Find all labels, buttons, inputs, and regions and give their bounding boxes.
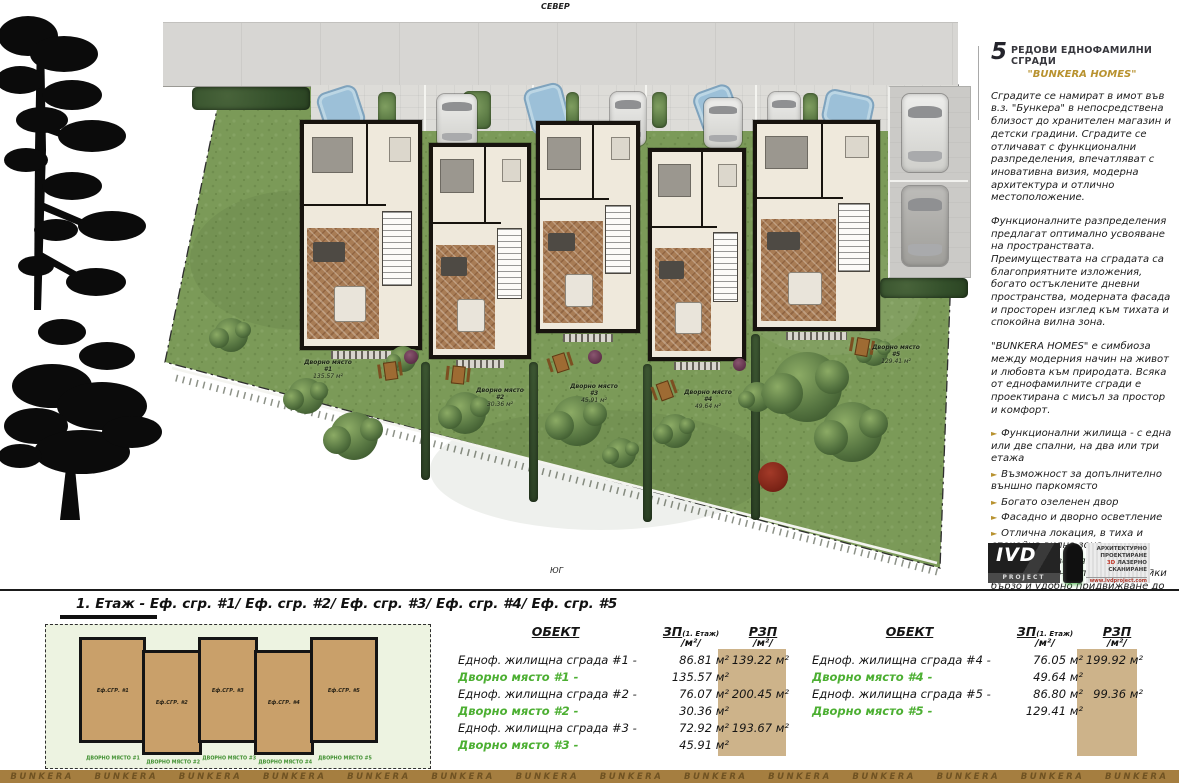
interior-wall <box>433 222 501 224</box>
bedroom-furniture <box>440 159 474 192</box>
interior-wall <box>757 197 843 199</box>
object-label: Дворно място #2 - <box>458 704 653 718</box>
rzp-value: 139.22 м² <box>729 653 789 667</box>
feature-item: ►Функционални жилища - с една или две сп… <box>991 428 1173 466</box>
feature-item: ►Фасадно и дворно осветление <box>991 512 1173 525</box>
title-underline <box>60 615 157 619</box>
title-text: РЕДОВИ ЕДНОФАМИЛНИ СГРАДИ <box>1011 45 1173 68</box>
bathroom <box>845 136 868 158</box>
description-paragraph: Функционалните разпределения предлагат о… <box>991 216 1173 330</box>
house-plan-1 <box>300 120 422 350</box>
col-object: ОБЕКТ <box>812 624 1007 639</box>
zp-sublabel: (1. Етаж) <box>682 630 719 638</box>
yard-name: Дворно място #1 <box>300 360 356 374</box>
staircase <box>838 203 870 272</box>
logo-name: IVD <box>996 544 1037 566</box>
bathroom <box>611 137 630 159</box>
red-bush <box>758 462 788 492</box>
rzp-label: РЗП <box>749 624 778 639</box>
picnic-table <box>445 365 471 383</box>
object-label: Едноф. жилищна сграда #4 - <box>812 653 1007 667</box>
site-plan: Дворно място #1 135.57 м² Дворно място #… <box>0 0 990 590</box>
table-row: Едноф. жилищна сграда #3 -72.92 м²193.67… <box>458 720 794 737</box>
yard-label-5: Дворно място #5 129.41 м² <box>868 345 924 366</box>
yard-hedge <box>751 334 760 520</box>
hedge-parking <box>880 278 968 298</box>
yard-name: Дворно място #3 <box>566 384 622 398</box>
watermark-text: BUNKERA <box>684 772 748 782</box>
zp-label: ЗП <box>1017 624 1036 639</box>
object-label: Дворно място #1 - <box>458 670 653 684</box>
panel-title: 5 РЕДОВИ ЕДНОФАМИЛНИ СГРАДИ <box>991 42 1173 68</box>
object-label: Дворно място #4 - <box>812 670 1007 684</box>
rzp-value: 199.92 м² <box>1083 653 1143 667</box>
zp-label: ЗП <box>663 624 682 639</box>
feature-text: Възможност за допълнително външно парком… <box>991 469 1162 493</box>
car <box>437 94 477 148</box>
interior-wall <box>701 152 703 226</box>
watermark-text: BUNKERA <box>179 772 243 782</box>
brand-subtitle: "BUNKERA HOMES" <box>991 69 1173 80</box>
rzp-unit: /м²/ <box>1088 639 1146 649</box>
table-row: Дворно място #2 -30.36 м² <box>458 703 794 720</box>
picnic-table <box>377 360 403 379</box>
watermark-text: BUNKERA <box>10 772 74 782</box>
watermark-text: BUNKERA <box>600 772 664 782</box>
tree <box>658 414 692 448</box>
rzp-label: РЗП <box>1103 624 1132 639</box>
car <box>902 94 948 172</box>
tree <box>606 438 636 468</box>
bedroom-furniture <box>312 137 353 172</box>
interior-wall <box>652 226 717 228</box>
bullet-arrow-icon: ► <box>991 429 997 438</box>
feature-text: Функционални жилища - с една или две спа… <box>991 428 1171 464</box>
planter <box>652 92 667 128</box>
title-number: 5 <box>991 42 1007 63</box>
floor-title: 1. Етаж - Еф. сгр. #1/ Еф. сгр. #2/ Еф. … <box>76 596 617 612</box>
rzp-value: 99.36 м² <box>1083 687 1143 701</box>
mini-building-1: Еф.СГР. #1 <box>79 637 146 743</box>
table-row: Дворно място #3 -45.91 м² <box>458 736 794 753</box>
yard-hedge <box>421 362 430 480</box>
yard-label-3: Дворно място #3 45.91 м² <box>566 384 622 405</box>
purple-bush <box>733 358 746 371</box>
feature-item: ►Възможност за допълнително външно парко… <box>991 469 1173 494</box>
yard-name: Дворно място #2 <box>472 388 528 402</box>
scanner-icon <box>1063 543 1083 583</box>
table-row: Едноф. жилищна сграда #5 -86.80 м²99.36 … <box>812 686 1144 703</box>
rzp-value: 193.67 м² <box>729 721 789 735</box>
sofa <box>313 242 345 262</box>
yard-label-2: Дворно място #2 30.36 м² <box>472 388 528 409</box>
interior-wall <box>821 124 823 197</box>
table-row: Едноф. жилищна сграда #1 -86.81 м²139.22… <box>458 652 794 669</box>
object-label: Едноф. жилищна сграда #2 - <box>458 687 653 701</box>
zp-value: 135.57 м² <box>653 670 729 684</box>
mini-yard-label-2: ДВОРНО МЯСТО #2 <box>146 760 197 766</box>
table-row: Дворно място #1 -135.57 м² <box>458 669 794 686</box>
logo-line: ПРОЕКТИРАНЕ <box>1086 553 1147 560</box>
watermark-text: BUNKERA <box>1021 772 1085 782</box>
table-header: ОБЕКТ ЗП(1. Етаж) /м²/ РЗП /м²/ <box>458 624 794 652</box>
bathroom <box>718 164 736 187</box>
logo-line: 3D ЛАЗЕРНО <box>1086 560 1147 567</box>
yard-area: 30.36 м² <box>487 401 513 408</box>
bathroom <box>502 159 521 182</box>
table-row: Едноф. жилищна сграда #4 -76.05 м²199.92… <box>812 652 1144 669</box>
mini-building-label: Еф.СГР. #4 <box>268 700 300 706</box>
watermark-text: BUNKERA <box>431 772 495 782</box>
sofa <box>767 232 800 250</box>
zp-value: 30.36 м² <box>653 704 729 718</box>
watermark-text: BUNKERA <box>937 772 1001 782</box>
description-paragraph: "BUNKERA HOMES" е симбиоза между модерни… <box>991 341 1173 417</box>
house-plan-2 <box>429 143 531 359</box>
yard-label-4: Дворно място #4 49.64 м² <box>680 390 736 411</box>
mini-building-label: Еф.СГР. #5 <box>328 687 360 693</box>
mini-building-5: Еф.СГР. #5 <box>310 637 378 743</box>
first-floor-section: 1. Етаж - Еф. сгр. #1/ Еф. сгр. #2/ Еф. … <box>0 589 1179 772</box>
interior-wall <box>592 125 594 198</box>
col-object: ОБЕКТ <box>458 624 653 639</box>
watermark-text: BUNKERA <box>263 772 327 782</box>
table-row: Дворно място #5 -129.41 м² <box>812 703 1144 720</box>
yard-area: 135.57 м² <box>313 373 343 380</box>
col-rzp: РЗП /м²/ <box>734 624 792 649</box>
street-north <box>163 22 958 87</box>
bullet-arrow-icon: ► <box>991 529 997 538</box>
mini-yard-label-5: ДВОРНО МЯСТО #5 <box>317 756 373 762</box>
mini-building-4: Еф.СГР. #4 <box>254 650 314 755</box>
col-zp: ЗП(1. Етаж) /м²/ <box>653 624 729 649</box>
mini-yard-label-1: ДВОРНО МЯСТО #1 <box>85 756 141 762</box>
brochure-page: Дворно място #1 135.57 м² Дворно място #… <box>0 0 1179 783</box>
staircase <box>605 205 631 274</box>
yard-area: 49.64 м² <box>695 403 721 410</box>
dining-table <box>334 286 367 321</box>
dining-table <box>565 274 593 307</box>
feature-text: Фасадно и дворно осветление <box>1001 512 1162 523</box>
object-label: Едноф. жилищна сграда #3 - <box>458 721 653 735</box>
zp-value: 45.91 м² <box>653 738 729 752</box>
staircase <box>713 232 738 302</box>
interior-wall <box>540 198 609 200</box>
area-table-right: ОБЕКТ ЗП(1. Етаж) /м²/ РЗП /м²/ Едноф. ж… <box>812 624 1144 720</box>
object-label: Дворно място #5 - <box>812 704 1007 718</box>
hedge-top-left <box>192 87 310 110</box>
bedroom-furniture <box>765 136 807 168</box>
table-row: Едноф. жилищна сграда #2 -76.07 м²200.45… <box>458 686 794 703</box>
tree <box>330 412 378 460</box>
purple-bush <box>588 350 602 364</box>
logo-services: АРХИТЕКТУРНО ПРОЕКТИРАНЕ 3D ЛАЗЕРНО СКАН… <box>1086 543 1150 583</box>
feature-text: Богато озеленен двор <box>1001 497 1118 508</box>
zp-value: 129.41 м² <box>1007 704 1083 718</box>
house-plan-3 <box>536 121 640 333</box>
interior-wall <box>304 204 386 206</box>
house-plan-4 <box>648 148 746 361</box>
mini-building-2: Еф.СГР. #2 <box>142 650 202 755</box>
watermark-text: BUNKERA <box>95 772 159 782</box>
sofa <box>659 261 684 279</box>
south-label: ЮГ <box>550 566 563 575</box>
mini-yard-label-3: ДВОРНО МЯСТО #3 <box>202 756 253 762</box>
car <box>704 98 742 148</box>
zp-value: 49.64 м² <box>1007 670 1083 684</box>
watermark-text: BUNKERA <box>768 772 832 782</box>
tree <box>288 378 324 414</box>
pine-silhouettes <box>0 0 175 520</box>
col-zp: ЗП(1. Етаж) /м²/ <box>1007 624 1083 649</box>
interior-wall <box>484 147 486 222</box>
dining-table <box>788 272 822 304</box>
sofa <box>548 233 575 251</box>
watermark-text: BUNKERA <box>516 772 580 782</box>
logo-line: АРХИТЕКТУРНО <box>1086 546 1147 553</box>
object-label: Едноф. жилищна сграда #5 - <box>812 687 1007 701</box>
lot-divider-line <box>424 85 426 131</box>
zp-value: 86.80 м² <box>1007 687 1083 701</box>
staircase <box>382 211 413 286</box>
bunkera-watermark-strip: BUNKERABUNKERABUNKERABUNKERABUNKERABUNKE… <box>0 770 1179 783</box>
mini-building-label: Еф.СГР. #1 <box>96 687 128 693</box>
zp-unit: /м²/ <box>1007 639 1083 649</box>
table-row: Дворно място #4 -49.64 м² <box>812 669 1144 686</box>
zp-sublabel: (1. Етаж) <box>1036 630 1073 638</box>
zp-value: 76.07 м² <box>653 687 729 701</box>
bullet-arrow-icon: ► <box>991 513 997 522</box>
yard-name: Дворно място #4 <box>680 390 736 404</box>
feature-item: ►Богато озеленен двор <box>991 497 1173 510</box>
object-label: Едноф. жилищна сграда #1 - <box>458 653 653 667</box>
zp-value: 86.81 м² <box>653 653 729 667</box>
purple-bush <box>404 350 418 364</box>
watermark-text: BUNKERA <box>347 772 411 782</box>
zp-value: 76.05 м² <box>1007 653 1083 667</box>
ivd-project-logo: IVD PROJECT АРХИТЕКТУРНО ПРОЕКТИРАНЕ 3D … <box>988 543 1150 583</box>
logo-website: www.ivdproject.com <box>1086 577 1147 585</box>
house-plan-5 <box>753 120 880 331</box>
dining-table <box>457 299 484 332</box>
logo-sub: PROJECT <box>988 573 1060 583</box>
logo-laser: ЛАЗЕРНО <box>1117 560 1147 566</box>
watermark-text: BUNKERA <box>1105 772 1169 782</box>
car <box>902 186 948 266</box>
bedroom-furniture <box>547 137 582 170</box>
dining-table <box>675 302 701 335</box>
table-header: ОБЕКТ ЗП(1. Етаж) /м²/ РЗП /м²/ <box>812 624 1144 652</box>
mini-building-label: Еф.СГР. #2 <box>156 700 188 706</box>
mini-site-plan: Еф.СГР. #1 Еф.СГР. #2 Еф.СГР. #3 Еф.СГР.… <box>45 624 431 769</box>
tree <box>822 402 882 462</box>
description-panel: 5 РЕДОВИ ЕДНОФАМИЛНИ СГРАДИ "BUNKERA HOM… <box>991 42 1173 609</box>
object-label: Дворно място #3 - <box>458 738 653 752</box>
bullet-arrow-icon: ► <box>991 470 997 479</box>
logo-mark: IVD PROJECT <box>988 543 1060 583</box>
bedroom-furniture <box>658 164 691 197</box>
logo-line: СКАНИРАНЕ <box>1086 567 1147 574</box>
yard-label-1: Дворно място #1 135.57 м² <box>300 360 356 381</box>
logo-3d: 3D <box>1107 560 1115 566</box>
sofa <box>441 257 467 276</box>
bathroom <box>389 137 412 161</box>
area-table-left: ОБЕКТ ЗП(1. Етаж) /м²/ РЗП /м²/ Едноф. ж… <box>458 624 794 753</box>
parking-divider <box>888 180 968 182</box>
mini-building-label: Еф.СГР. #3 <box>212 687 244 693</box>
mini-building-3: Еф.СГР. #3 <box>198 637 258 743</box>
bullet-arrow-icon: ► <box>991 498 997 507</box>
yard-hedge <box>529 362 538 502</box>
north-label: СЕВЕР <box>541 2 570 11</box>
tree <box>214 318 248 352</box>
rzp-unit: /м²/ <box>734 639 792 649</box>
yard-name: Дворно място #5 <box>868 345 924 359</box>
yard-area: 45.91 м² <box>581 397 607 404</box>
watermark-text: BUNKERA <box>852 772 916 782</box>
staircase <box>497 228 523 299</box>
zp-value: 72.92 м² <box>653 721 729 735</box>
col-rzp: РЗП /м²/ <box>1088 624 1146 649</box>
interior-wall <box>366 124 368 204</box>
zp-unit: /м²/ <box>653 639 729 649</box>
yard-area: 129.41 м² <box>881 358 911 365</box>
mini-yard-label-4: ДВОРНО МЯСТО #4 <box>258 760 309 766</box>
sidebar-divider-line <box>978 46 979 120</box>
rzp-value: 200.45 м² <box>729 687 789 701</box>
description-paragraph: Сградите се намират в имот във в.з. "Бун… <box>991 91 1173 205</box>
